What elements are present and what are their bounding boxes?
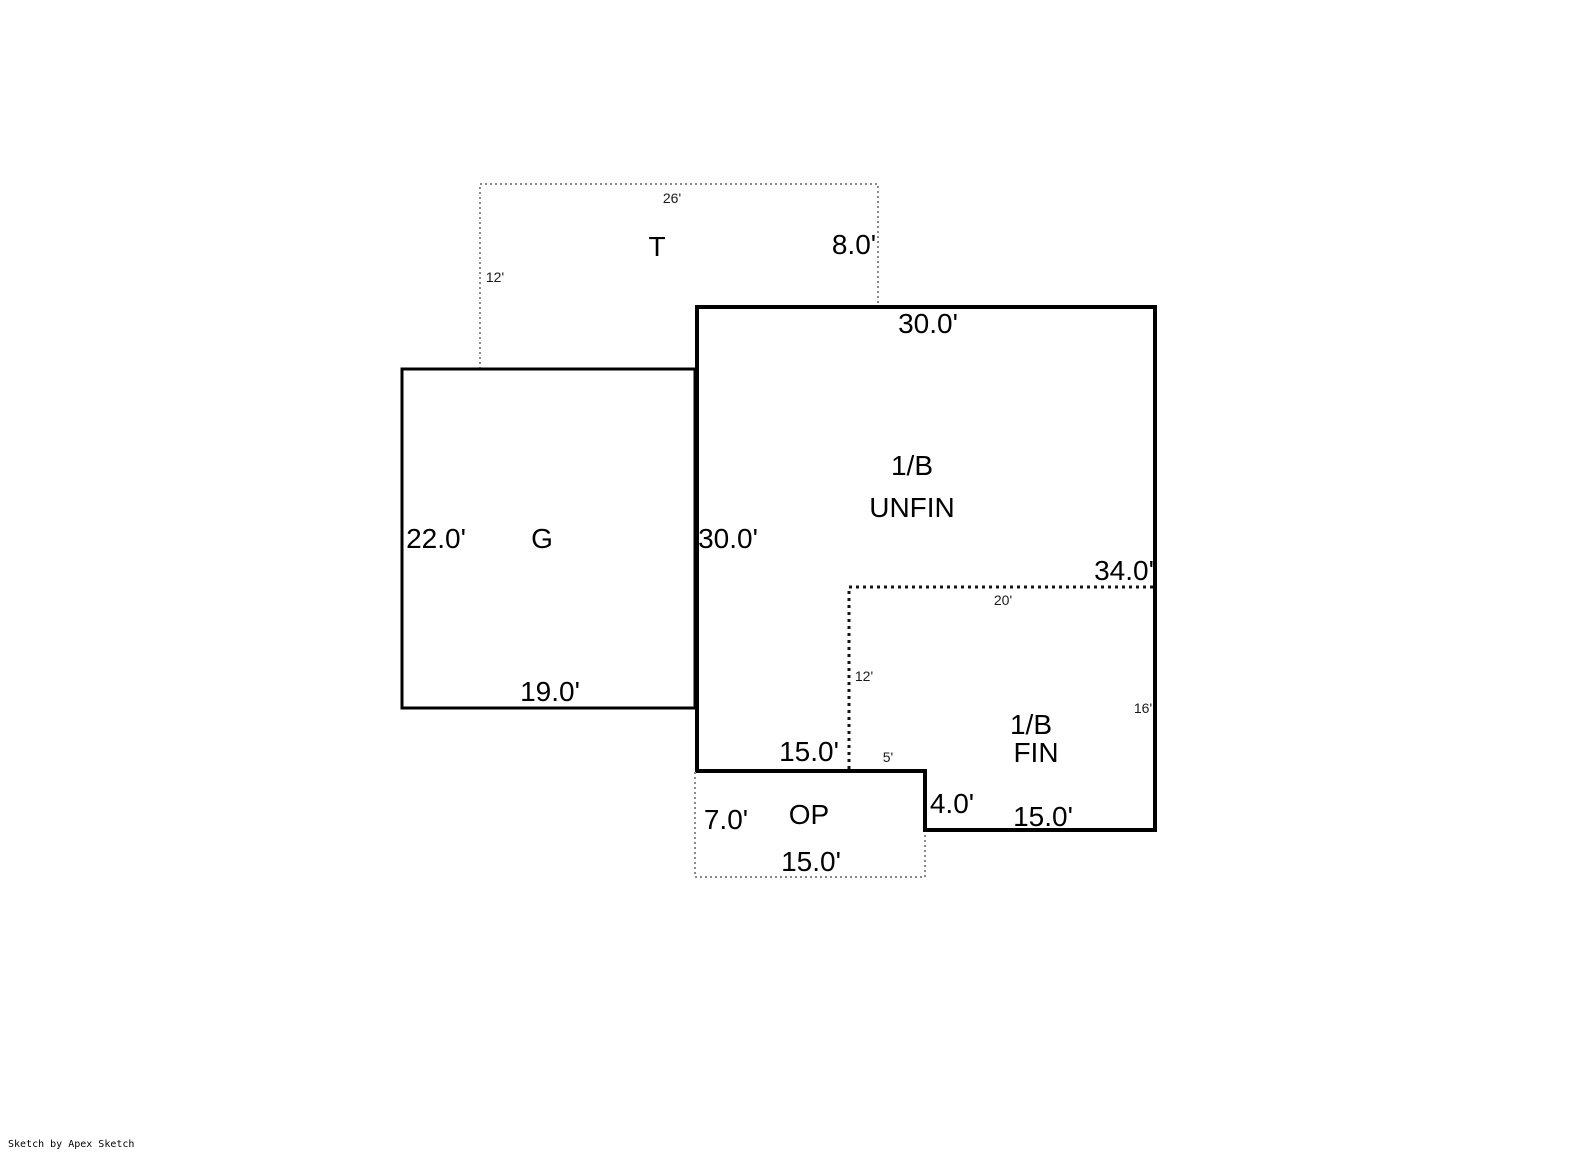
floorplan-linework — [0, 0, 1585, 1163]
unfin-room-label-line2: UNFIN — [869, 494, 955, 522]
fin-step-dim: 4.0' — [930, 790, 974, 818]
porch-room-label: OP — [789, 801, 829, 829]
fin-gap-dim: 5' — [883, 750, 893, 764]
tank-room-label: T — [648, 233, 665, 261]
tank-left-dim: 12' — [486, 270, 504, 284]
porch-bottom-dim: 15.0' — [781, 848, 841, 876]
fin-room-label-line2: FIN — [1013, 739, 1058, 767]
garage-bottom-dim: 19.0' — [520, 678, 580, 706]
fin-inner-left-dim: 12' — [855, 669, 873, 683]
fin-bottom-dim: 15.0' — [1013, 803, 1073, 831]
tank-top-dim: 26' — [663, 191, 681, 205]
porch-left-dim: 7.0' — [704, 806, 748, 834]
unfin-top-dim: 30.0' — [898, 310, 958, 338]
fin-right-total-dim: 34.0' — [1094, 557, 1154, 585]
tank-dotted-outline — [480, 184, 878, 369]
fin-right-dim: 16' — [1134, 701, 1152, 715]
finished-area-divider — [849, 587, 1155, 769]
apex-sketch-watermark: Sketch by Apex Sketch — [8, 1139, 134, 1150]
unfin-left-dim: 30.0' — [698, 525, 758, 553]
fin-room-label-line1: 1/B — [1010, 711, 1052, 739]
garage-room-label: G — [531, 525, 553, 553]
unfin-room-label-line1: 1/B — [891, 452, 933, 480]
garage-left-dim: 22.0' — [406, 525, 466, 553]
floorplan-sketch: 26' T 8.0' 12' 30.0' 1/B UNFIN 30.0' 15.… — [0, 0, 1585, 1163]
fin-inner-top-dim: 20' — [994, 593, 1012, 607]
unfin-bottom-dim: 15.0' — [779, 738, 839, 766]
basement-outline — [697, 307, 1155, 830]
tank-right-dim: 8.0' — [832, 231, 876, 259]
